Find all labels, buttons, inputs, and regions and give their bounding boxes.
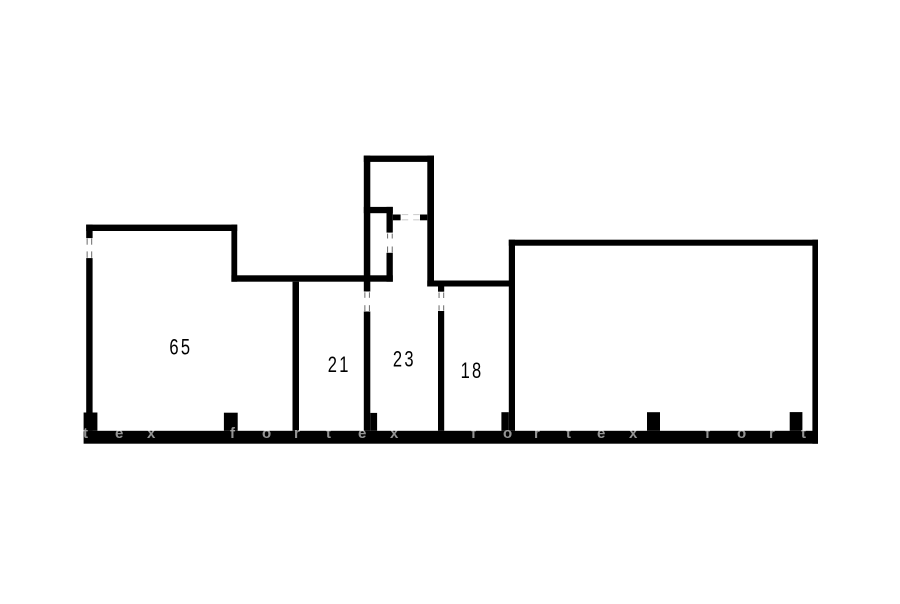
svg-text:21: 21 — [328, 353, 351, 378]
svg-text:18: 18 — [461, 359, 484, 384]
svg-text:23: 23 — [393, 347, 416, 372]
svg-text:65: 65 — [169, 335, 192, 360]
